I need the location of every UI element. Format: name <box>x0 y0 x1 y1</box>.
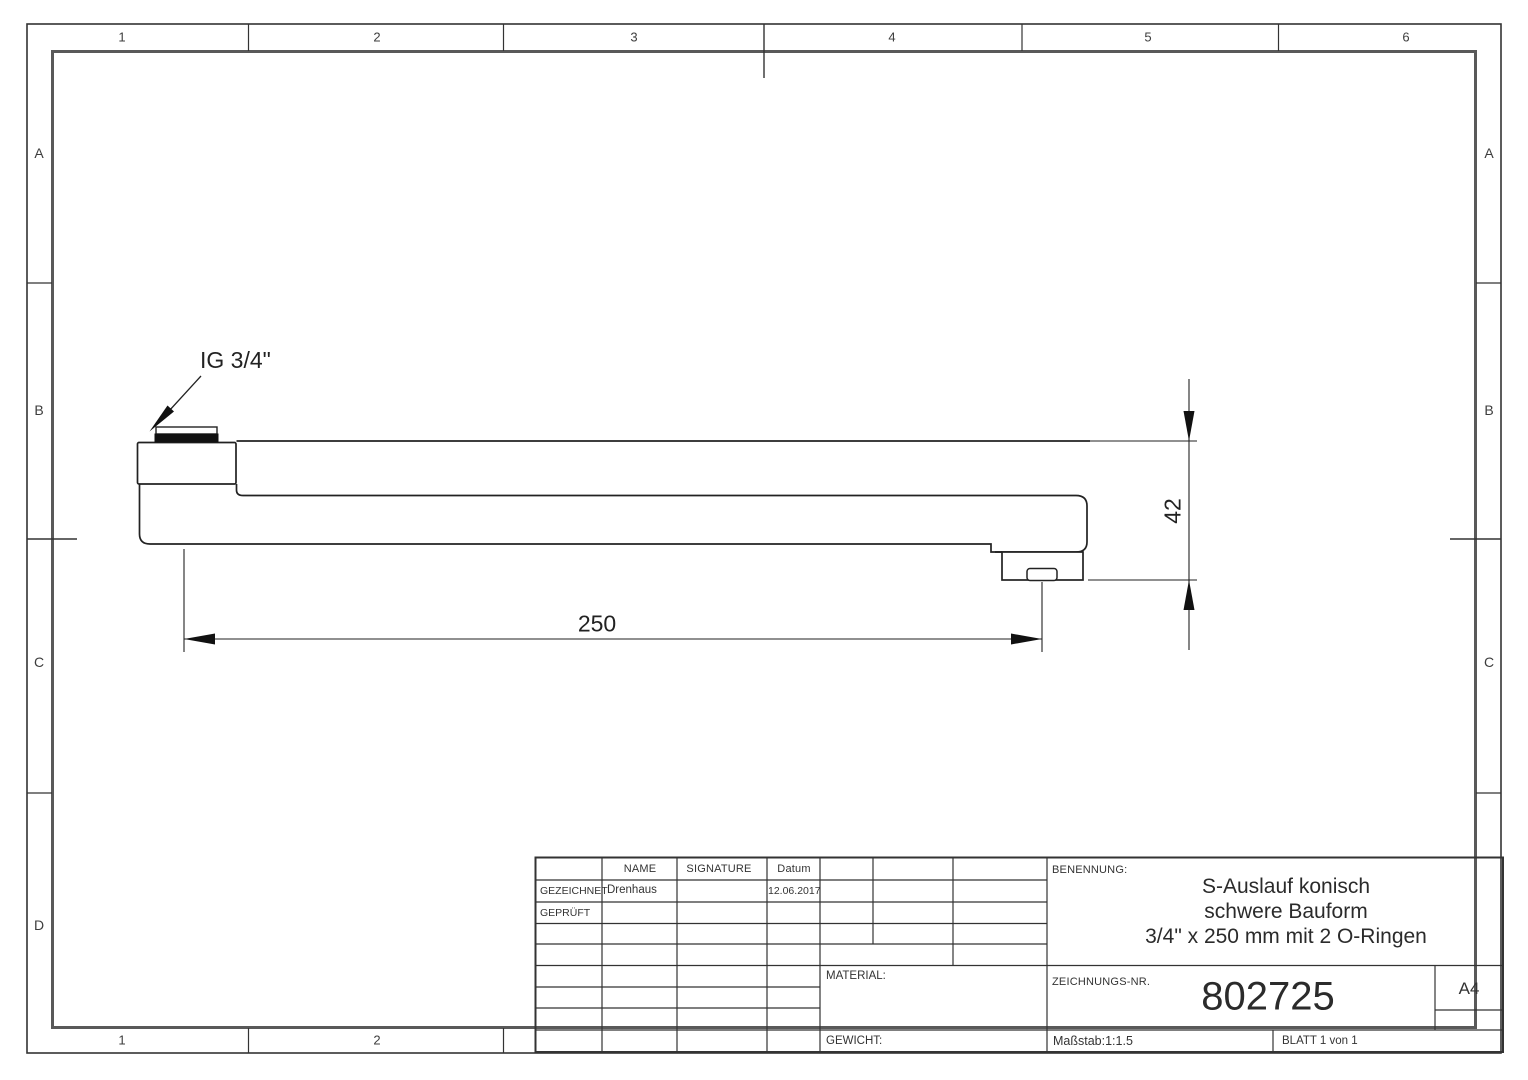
zone-col-1-bottom: 1 <box>118 1033 125 1048</box>
outlet-stub <box>1027 569 1057 581</box>
spout-body-bottom <box>140 484 1003 552</box>
sheet-count-label: BLATT 1 von 1 <box>1282 1035 1358 1047</box>
connector-block <box>138 443 237 485</box>
zone-row-d-left: D <box>34 917 44 933</box>
paper-format: A4 <box>1459 979 1480 999</box>
dim-42-text: 42 <box>1160 498 1187 524</box>
col-header-date: Datum <box>777 863 810 875</box>
spout-underside-taper <box>237 484 1088 552</box>
part-title-line1: S-Auslauf konisch <box>1069 874 1503 899</box>
part-title-line2: schwere Bauform <box>1069 899 1503 924</box>
dim-250-text: 250 <box>578 611 616 638</box>
zone-col-2-top: 2 <box>373 30 380 45</box>
checked-row-label: GEPRÜFT <box>540 907 590 919</box>
dim-42-arrow-top <box>1184 411 1195 441</box>
zone-row-a-left: A <box>34 145 43 161</box>
zone-row-a-right: A <box>1484 145 1493 161</box>
zone-col-2-bottom: 2 <box>373 1033 380 1048</box>
zone-row-b-left: B <box>34 402 43 418</box>
zone-col-4-top: 4 <box>888 30 895 45</box>
drawing-number-label: ZEICHNUNGS-NR. <box>1052 976 1150 988</box>
weight-label: GEWICHT: <box>826 1035 882 1047</box>
drawing-number: 802725 <box>1201 975 1334 1020</box>
drawn-row-label: GEZEICHNET <box>540 885 608 897</box>
col-header-name: NAME <box>624 863 657 875</box>
o-ring-band <box>155 434 219 443</box>
zone-col-1-top: 1 <box>118 30 125 45</box>
dim-250-arrow-right <box>1011 634 1042 645</box>
dim-250-arrow-left <box>184 634 215 645</box>
col-header-signature: SIGNATURE <box>686 863 751 875</box>
zone-col-6-top: 6 <box>1402 30 1409 45</box>
thread-cap <box>156 427 217 434</box>
zone-col-5-top: 5 <box>1144 30 1151 45</box>
material-label: MATERIAL: <box>826 970 886 982</box>
scale-label: Maßstab:1:1.5 <box>1053 1034 1133 1048</box>
part-title-line3: 3/4" x 250 mm mit 2 O-Ringen <box>1069 924 1503 949</box>
zone-row-b-right: B <box>1484 402 1493 418</box>
part-view <box>138 376 1091 581</box>
drawn-by-name: Drenhaus <box>607 884 657 896</box>
dim-42-arrow-bottom <box>1184 580 1195 610</box>
thread-callout-label: IG 3/4" <box>200 347 271 374</box>
dimensions <box>184 379 1197 652</box>
drawn-date: 12.06.2017 <box>768 885 821 897</box>
part-title: S-Auslauf konisch schwere Bauform 3/4" x… <box>1069 874 1503 949</box>
drawing-sheet: 1 2 3 4 5 6 1 2 A B C D A B C IG 3/4" 25… <box>0 0 1528 1080</box>
zone-col-3-top: 3 <box>630 30 637 45</box>
zone-row-c-left: C <box>34 654 44 670</box>
zone-row-c-right: C <box>1484 654 1494 670</box>
